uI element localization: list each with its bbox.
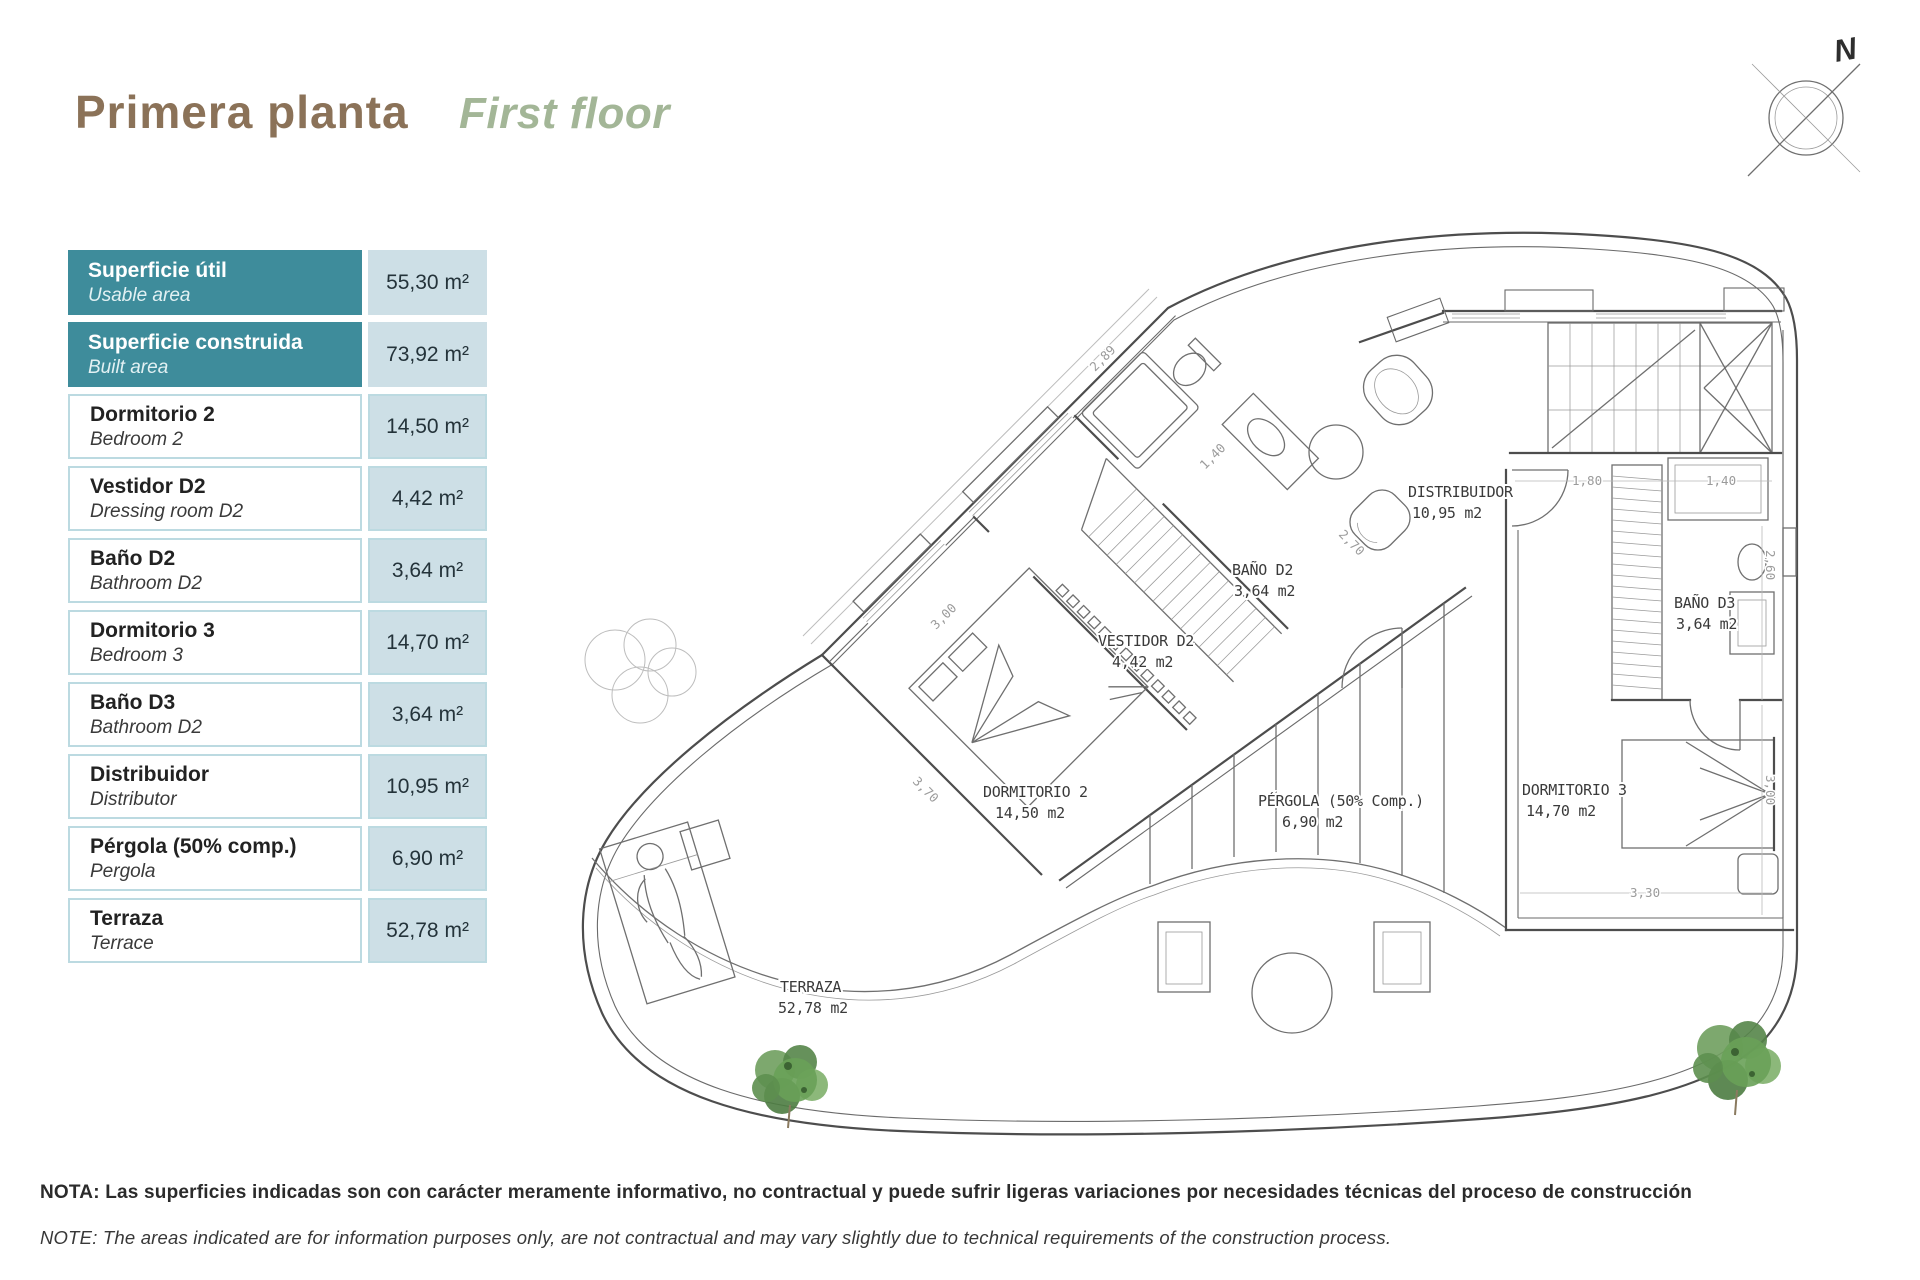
bedroom2-wing bbox=[811, 297, 1388, 874]
room-area: 6,90 m2 bbox=[1282, 813, 1343, 831]
room-label: PÉRGOLA (50% Comp.) bbox=[1258, 791, 1424, 810]
dim-label: 1,40 bbox=[1197, 440, 1229, 472]
room-area: 14,70 m2 bbox=[1526, 802, 1596, 820]
room-label: DORMITORIO 3 bbox=[1522, 781, 1627, 799]
dim-label: 3,00 bbox=[1763, 775, 1778, 805]
dim-label: 1,80 bbox=[1572, 473, 1602, 488]
room-area: 3,64 m2 bbox=[1234, 582, 1295, 600]
note-english: NOTE: The areas indicated are for inform… bbox=[40, 1227, 1896, 1249]
room-label: BAÑO D2 bbox=[1232, 560, 1293, 579]
bedroom3 bbox=[1506, 738, 1793, 930]
floor-plan-drawing: N bbox=[0, 0, 1920, 1280]
dim-label: 1,40 bbox=[1706, 473, 1736, 488]
room-label: DISTRIBUIDOR bbox=[1408, 483, 1514, 501]
room-area: 3,64 m2 bbox=[1676, 615, 1737, 633]
corridor-wardrobe bbox=[1612, 465, 1662, 700]
dim-label: 2,60 bbox=[1763, 550, 1778, 580]
dim-label: 2,70 bbox=[1336, 527, 1368, 559]
plot-boundary bbox=[583, 233, 1797, 1135]
disclaimer-notes: NOTA: Las superficies indicadas son con … bbox=[40, 1182, 1896, 1249]
room-area: 52,78 m2 bbox=[778, 999, 848, 1017]
room-label: TERRAZA bbox=[780, 978, 841, 996]
room-label: VESTIDOR D2 bbox=[1098, 632, 1194, 650]
room-area: 10,95 m2 bbox=[1412, 504, 1482, 522]
note-spanish: NOTA: Las superficies indicadas son con … bbox=[40, 1182, 1896, 1204]
compass-icon: N bbox=[1748, 30, 1860, 176]
stairwell bbox=[1548, 323, 1772, 453]
compass-north-label: N bbox=[1831, 30, 1860, 68]
dim-label: 3,70 bbox=[910, 774, 942, 806]
dimension-lines bbox=[1515, 481, 1772, 915]
floorplan-page: { "title": { "es": "Primera planta", "en… bbox=[0, 0, 1920, 1280]
room-label: DORMITORIO 2 bbox=[983, 783, 1088, 801]
dim-label: 3,30 bbox=[1630, 885, 1660, 900]
room-area: 14,50 m2 bbox=[995, 804, 1065, 822]
dim-label: 3,00 bbox=[928, 600, 960, 632]
terrace-seating bbox=[1158, 922, 1430, 1033]
sun-lounger bbox=[600, 820, 735, 1004]
pale-tree bbox=[585, 619, 696, 723]
room-label: BAÑO D3 bbox=[1674, 593, 1735, 612]
room-area: 4,42 m2 bbox=[1112, 653, 1173, 671]
